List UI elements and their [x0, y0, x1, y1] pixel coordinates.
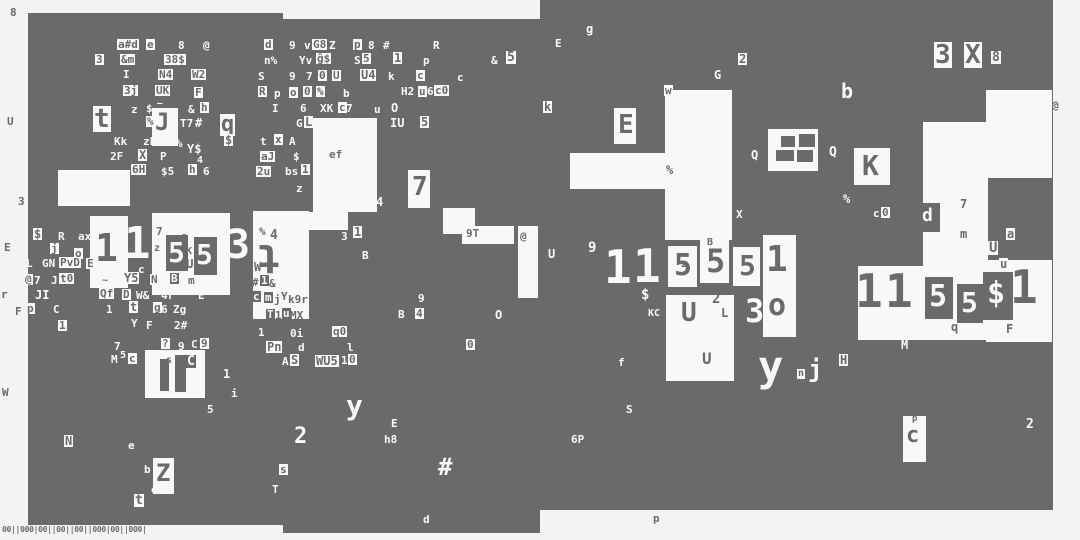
glyph: L: [26, 258, 33, 269]
glyph: h8: [384, 434, 397, 445]
glyph: 9: [178, 341, 185, 352]
glyph: 1: [341, 355, 348, 366]
glyph: F: [1006, 323, 1013, 335]
glyph: Zg: [173, 304, 186, 315]
glyph: %: [666, 164, 673, 176]
glyph: 9: [289, 71, 296, 82]
glyph: 5: [196, 241, 213, 269]
glyph: 1: [223, 368, 230, 380]
glyph: Y5: [123, 272, 139, 284]
glyph: a: [1006, 228, 1015, 240]
glitch-screen: 8U3ErFWa#de8@3&m38$IN4W23jUKFz$—&ht%JsT7…: [0, 0, 1080, 540]
glyph: Y: [281, 291, 288, 302]
glyph: R: [258, 86, 267, 97]
glyph: p: [423, 55, 430, 66]
glyph: E: [198, 290, 205, 301]
glyph: C: [53, 304, 60, 315]
glyph: Kk: [114, 136, 127, 147]
glyph: 1: [95, 229, 118, 267]
glyph: 5: [706, 245, 725, 277]
glyph: I: [123, 69, 130, 80]
glyph: M: [901, 339, 908, 351]
glyph: O: [391, 102, 398, 114]
glyph: e: [128, 440, 135, 451]
glyph: 1: [1010, 264, 1038, 310]
glyph: @: [1052, 100, 1059, 111]
glyph: WU5: [315, 355, 339, 367]
glyph: c: [128, 353, 137, 364]
glyph: S: [626, 404, 633, 415]
glyph: t: [93, 106, 111, 132]
glyph: T: [272, 484, 279, 495]
glyph: T: [266, 309, 275, 320]
glyph: b: [841, 81, 853, 101]
glyph: B: [362, 250, 369, 261]
glyph: q0: [332, 326, 347, 337]
glyph: 5: [168, 239, 185, 267]
glyph: F: [194, 87, 203, 98]
glyph: KC: [648, 309, 660, 319]
glyph: GN: [42, 258, 55, 269]
glyph: c: [906, 425, 919, 447]
glyph: #: [438, 455, 452, 479]
glyph: 1: [604, 244, 632, 290]
glyph: N4: [158, 69, 173, 80]
glyph: S: [290, 354, 299, 366]
glyph: 9: [289, 40, 296, 51]
glyph: 6: [203, 166, 210, 177]
glyph: e: [146, 39, 155, 50]
glyph: n%: [264, 55, 277, 66]
glyph: K: [309, 292, 316, 303]
glyph: 9T: [466, 228, 479, 239]
glyph: W: [2, 387, 9, 398]
glyph: X: [964, 42, 982, 68]
glyph: %: [259, 226, 266, 237]
status-bar-text: 00||000|00||00||00||000|00||000|: [2, 526, 147, 534]
glyph: d: [264, 39, 273, 50]
glyph: 0i: [290, 328, 303, 339]
glyph: $: [33, 228, 42, 240]
glyph: 1: [106, 304, 113, 315]
white-blob: [570, 153, 668, 189]
glyph: g: [586, 23, 593, 35]
glyph: Q: [751, 149, 758, 161]
glyph: 9: [200, 338, 209, 349]
glyph: 1: [301, 164, 310, 175]
glyph: G: [296, 118, 303, 129]
glyph: Qf: [99, 288, 114, 299]
glyph: aJ: [260, 151, 275, 162]
glyph: 0: [303, 86, 312, 97]
glyph: j: [994, 162, 1001, 174]
glyph: J: [155, 110, 169, 134]
glyph: l: [347, 342, 354, 353]
glyph: c: [457, 72, 464, 83]
glyph: z: [154, 244, 160, 254]
glyph: ~: [102, 276, 108, 286]
glyph: z: [681, 260, 687, 270]
glyph: 2: [712, 292, 720, 306]
glyph: MX: [290, 310, 303, 321]
glyph: 1: [260, 275, 269, 286]
glyph: 5: [362, 53, 371, 64]
glyph: H2: [401, 86, 414, 97]
glyph: w: [664, 85, 673, 96]
glyph: K: [186, 247, 192, 257]
glyph: F: [15, 306, 22, 317]
glyph: U: [702, 351, 712, 367]
glyph: Y$: [186, 143, 202, 155]
glyph: 7: [156, 226, 163, 237]
glyph: 7: [960, 198, 967, 210]
glyph: 8: [368, 40, 375, 51]
glyph: 7: [412, 174, 428, 200]
glyph: o: [768, 291, 786, 321]
glyph: s: [279, 464, 288, 475]
glyph: v: [304, 40, 311, 51]
glyph: j: [50, 243, 59, 254]
glyph: c0: [434, 85, 449, 96]
glyph: x: [274, 134, 283, 145]
glyph: 3j: [123, 85, 138, 96]
glyph: 5: [739, 252, 756, 280]
glyph: W2: [191, 69, 206, 80]
glyph: c: [416, 70, 425, 81]
glyph: 2u: [256, 166, 271, 177]
glyph: 3: [95, 54, 104, 65]
glyph: B: [707, 238, 713, 248]
glyph: Q: [829, 146, 837, 159]
glyph: z: [296, 183, 303, 194]
glyph: ?: [161, 338, 170, 349]
glyph: 0: [881, 207, 890, 218]
glyph: 3: [18, 196, 25, 207]
glyph: #: [383, 40, 390, 51]
glyph: E: [86, 258, 95, 269]
glyph: IU: [390, 117, 404, 129]
glyph: 9uQ: [328, 134, 350, 146]
glyph: #: [194, 117, 203, 129]
glyph: C: [186, 355, 196, 368]
glyph: S: [354, 55, 361, 66]
glyph: E: [391, 418, 398, 429]
glyph: u: [374, 104, 381, 115]
glyph: 0: [466, 339, 475, 350]
glyph: P: [160, 151, 167, 162]
glyph: Yv: [299, 55, 312, 66]
glyph: 1: [633, 243, 661, 289]
glyph: $: [987, 279, 1005, 309]
glyph: $: [293, 151, 300, 162]
glyph: s: [173, 120, 179, 130]
glyph: a#d: [117, 39, 139, 50]
glyph: o: [289, 87, 298, 98]
glyph: %: [146, 116, 155, 127]
bar-inset: [175, 355, 186, 392]
glyph: M: [111, 354, 118, 365]
glyph: t: [260, 136, 267, 147]
glyph: &: [269, 278, 276, 289]
glyph: q: [951, 321, 958, 333]
glyph: D: [122, 289, 131, 300]
glyph: 1: [855, 268, 883, 314]
glyph: 7: [346, 103, 353, 114]
glyph: &: [188, 104, 195, 115]
glyph: W: [254, 261, 261, 273]
glyph: 5: [961, 289, 978, 317]
glyph: I: [272, 103, 279, 114]
glyph: Q: [328, 309, 335, 321]
glyph: Z: [329, 40, 336, 51]
glyph: 5: [506, 51, 516, 64]
glyph: 1: [258, 327, 265, 338]
glyph: c: [252, 291, 261, 302]
glyph: X: [138, 149, 147, 161]
glyph: d: [423, 514, 430, 525]
glyph: X: [736, 209, 743, 220]
glyph: J: [51, 275, 58, 286]
glyph: 7: [34, 275, 41, 286]
glyph: B: [398, 309, 405, 320]
glyph: 7: [306, 71, 313, 82]
glyph: 3: [226, 225, 250, 265]
glyph: bs: [285, 166, 298, 177]
glyph: zk: [143, 136, 156, 147]
glyph: Pn: [266, 341, 282, 353]
glyph: t0: [59, 273, 74, 284]
glyph: U: [988, 241, 998, 255]
glyph: W&: [136, 290, 149, 301]
glyph: 4r: [161, 290, 174, 301]
glyph: &m: [120, 54, 135, 65]
glyph: u: [418, 86, 427, 97]
glyph: U: [548, 248, 555, 260]
glyph: E: [4, 242, 11, 253]
window-pane: [781, 136, 795, 147]
glyph: 0: [317, 293, 324, 304]
glyph: 1: [393, 52, 402, 64]
glyph: G: [714, 69, 721, 81]
glyph: t: [134, 494, 144, 507]
glyph: t: [129, 301, 138, 313]
white-blob: [665, 90, 732, 240]
glyph: p: [353, 39, 362, 50]
glyph: 2: [294, 426, 307, 448]
glyph: Z: [156, 461, 170, 485]
glyph: %: [843, 193, 850, 205]
glyph: c: [350, 310, 357, 321]
glyph: u: [999, 258, 1008, 270]
glyph: A: [289, 136, 296, 147]
glyph: N: [64, 435, 73, 447]
glyph: &: [491, 55, 498, 66]
glyph: j: [808, 357, 822, 381]
glyph: 8: [10, 7, 17, 18]
glyph: 5: [338, 166, 345, 177]
glyph: f: [618, 357, 625, 368]
glyph: E: [618, 112, 634, 138]
glyph: R: [433, 40, 440, 51]
glyph: Y: [131, 318, 138, 329]
white-blob: [58, 170, 130, 206]
glyph: K: [862, 152, 879, 180]
glyph: O: [495, 309, 502, 321]
glyph: $: [224, 134, 233, 146]
glyph: p: [653, 513, 660, 524]
glyph: d: [922, 207, 933, 225]
glyph: U: [332, 70, 341, 81]
glyph: @: [203, 40, 210, 51]
glyph: a: [466, 253, 472, 263]
glyph: %: [176, 138, 183, 149]
glyph: @: [24, 274, 33, 285]
glyph: 1: [275, 310, 282, 321]
glyph: S: [258, 71, 265, 82]
glyph: #: [252, 277, 259, 288]
glyph: 9: [418, 293, 425, 304]
glyph: 2: [1026, 418, 1034, 431]
glyph: R: [58, 231, 65, 242]
white-blob: [284, 212, 348, 230]
glyph: i: [231, 388, 238, 399]
window-pane: [799, 134, 815, 147]
glyph: 2F: [110, 151, 123, 162]
glyph: y: [346, 392, 363, 420]
glyph: p: [26, 303, 35, 314]
glyph: b: [343, 88, 350, 99]
glyph: 6P: [571, 434, 584, 445]
glyph: T7: [180, 118, 193, 129]
glyph: 1: [353, 226, 362, 238]
glyph: H: [839, 354, 848, 366]
glyph: y: [758, 346, 783, 388]
glyph: PvD: [59, 257, 81, 268]
glyph: &: [984, 146, 991, 157]
glyph: ĝ$: [316, 53, 331, 64]
glyph: 4: [415, 308, 424, 319]
glyph: 4: [376, 196, 383, 208]
glyph: 6: [300, 103, 307, 114]
glyph: 8: [991, 51, 1001, 64]
glyph: k: [543, 101, 552, 113]
glyph: UK: [155, 85, 170, 96]
glyph: $: [146, 103, 153, 114]
glyph: h: [200, 102, 209, 113]
glyph: JI: [35, 289, 49, 301]
glyph: B: [170, 273, 179, 284]
glyph: $5: [161, 166, 174, 177]
window-pane: [797, 150, 813, 162]
glyph: o: [116, 273, 123, 284]
glyph: 1: [885, 268, 913, 314]
glyph: U: [7, 116, 14, 127]
glyph: 0: [348, 354, 357, 365]
glyph: m: [188, 275, 195, 286]
glyph: 1: [124, 222, 151, 266]
glyph: s: [166, 356, 172, 366]
glyph: $: [641, 288, 649, 302]
glyph: &: [339, 118, 346, 129]
glyph: 5: [420, 116, 429, 128]
glyph: 1: [766, 242, 788, 278]
glyph: L: [304, 116, 313, 128]
glyph: z: [131, 104, 138, 115]
glyph: 5: [207, 404, 214, 415]
glyph: r: [1, 289, 8, 300]
glyph: 9: [588, 241, 596, 255]
glyph: @: [520, 231, 527, 242]
glyph: N: [150, 274, 159, 285]
glyph: 5: [929, 282, 947, 312]
glyph: ax: [78, 231, 91, 242]
glyph: *: [703, 504, 709, 514]
glyph: 2#: [174, 320, 187, 331]
glyph: h: [188, 164, 197, 175]
glyph: E: [555, 38, 562, 49]
glyph: j: [274, 294, 281, 305]
glyph: 3: [934, 42, 952, 68]
glyph: n: [797, 369, 805, 379]
glyph: 3: [341, 231, 348, 242]
glyph: m: [960, 228, 967, 240]
glyph: m: [264, 292, 273, 303]
glyph: L: [721, 307, 728, 319]
glyph: 38$: [164, 54, 186, 65]
glyph: p: [274, 88, 281, 99]
glyph: F: [146, 320, 153, 331]
glyph: 5: [120, 351, 126, 361]
glyph: U4: [360, 69, 376, 81]
glyph: 4: [353, 118, 360, 129]
glyph: 6H: [131, 164, 146, 175]
glyph: b: [144, 464, 151, 475]
glyph: o: [151, 486, 157, 496]
glyph: 2: [738, 53, 747, 65]
glyph: G8: [312, 39, 327, 50]
glyph: 1: [58, 320, 67, 331]
glyph: 3: [745, 295, 764, 327]
glyph: 8: [178, 40, 185, 51]
glyph: p: [912, 415, 917, 424]
glyph: U: [681, 300, 697, 326]
glyph: 4: [270, 229, 278, 242]
window-pane: [776, 150, 794, 161]
glyph: A: [282, 356, 289, 367]
glyph: d: [298, 342, 305, 353]
glyph: C: [191, 339, 198, 350]
glyph: 6: [161, 304, 168, 315]
glyph: k9r: [288, 294, 308, 305]
glyph: %: [316, 86, 325, 97]
glyph: ef: [328, 149, 343, 160]
glyph: XK: [320, 103, 333, 114]
glyph: c: [873, 208, 880, 219]
glyph: k: [388, 71, 395, 82]
glyph: 6: [427, 86, 434, 97]
glyph: 0: [318, 70, 327, 81]
